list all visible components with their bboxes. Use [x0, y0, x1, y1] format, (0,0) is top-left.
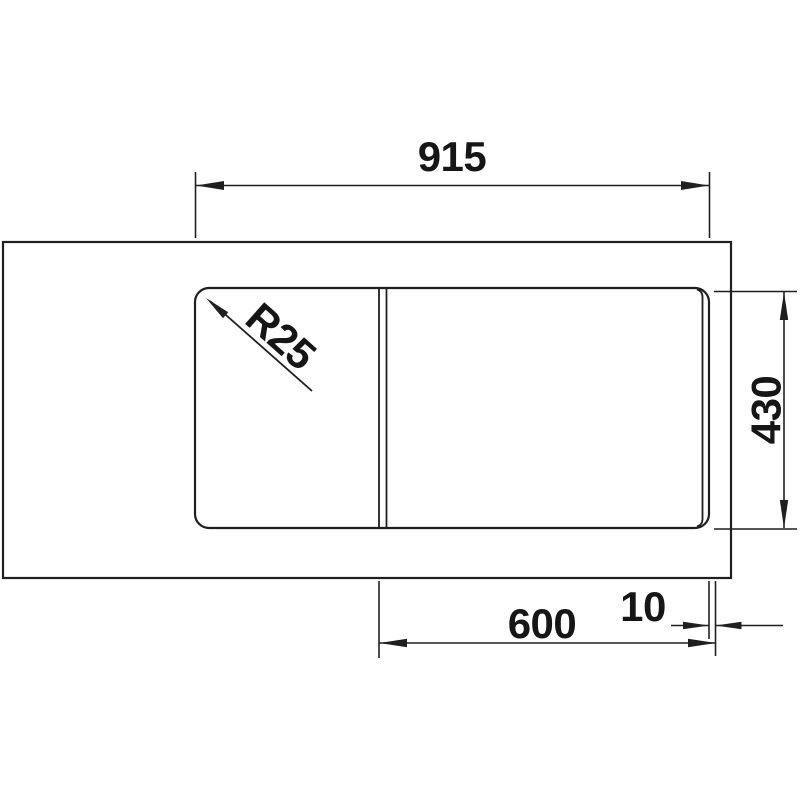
arrow-right-icon: [688, 639, 716, 647]
arrow-left-icon: [716, 622, 742, 629]
dimension-label-cabinet-width: 600: [508, 600, 577, 647]
dimension-label-overall-depth: 430: [743, 376, 790, 445]
sink-inner-right-edge-line: [697, 290, 703, 527]
technical-drawing-svg: 915 430 600 10 R25: [0, 0, 800, 800]
dimension-label-overall-width: 915: [418, 133, 487, 180]
sink-dimension-drawing: 915 430 600 10 R25: [0, 0, 800, 800]
arrow-left-icon: [196, 181, 224, 190]
arrow-up-icon: [780, 292, 788, 320]
dimension-label-overhang: 10: [620, 583, 666, 630]
arrow-right-icon: [683, 622, 709, 629]
arrow-down-icon: [780, 500, 788, 528]
corner-radius-label: R25: [237, 294, 325, 379]
arrow-right-icon: [681, 181, 709, 190]
arrow-up-left-icon: [206, 298, 228, 318]
arrow-left-icon: [379, 639, 407, 647]
